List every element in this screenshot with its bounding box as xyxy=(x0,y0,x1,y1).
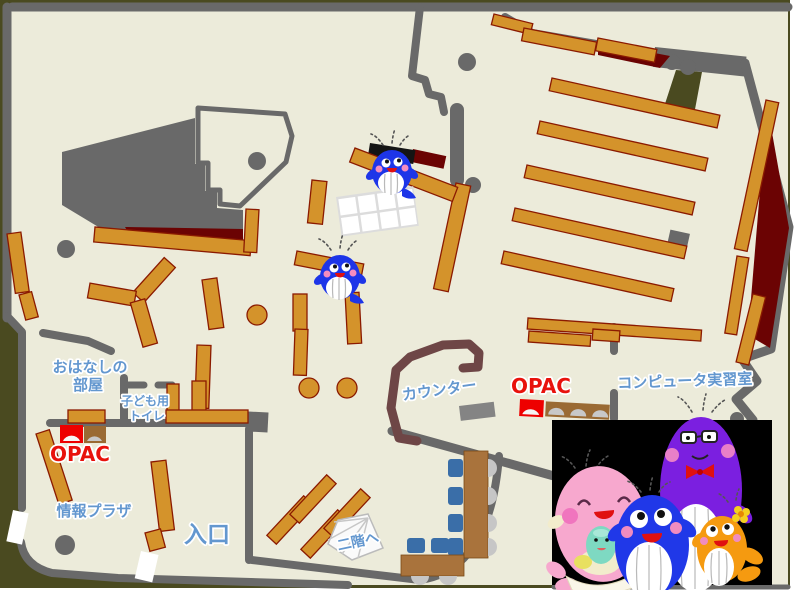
chair xyxy=(407,538,425,553)
chair xyxy=(431,538,449,553)
opac-terminal-left xyxy=(60,425,106,443)
label-entrance: 入口 xyxy=(184,522,230,548)
chair xyxy=(448,487,463,505)
library-floor-map: おはなしの 部屋 子ども用 トイレ OPAC 情報プラザ 入口 二階へ カウンタ… xyxy=(0,0,800,590)
chair xyxy=(448,459,463,477)
label-kids-toilet-line1: 子ども用 xyxy=(121,394,169,408)
round-table xyxy=(299,378,319,398)
flower xyxy=(732,506,750,523)
label-kids-toilet-line2: トイレ xyxy=(129,409,165,423)
round-table xyxy=(337,378,357,398)
label-opac-center: OPAC xyxy=(511,374,571,398)
label-info-plaza: 情報プラザ xyxy=(56,502,131,520)
label-storytelling-room-line2: 部屋 xyxy=(73,376,103,394)
chair xyxy=(448,514,463,532)
mascot-photo xyxy=(543,394,772,590)
label-opac-left: OPAC xyxy=(50,442,110,466)
label-storytelling-room-line1: おはなしの xyxy=(52,358,127,376)
chair xyxy=(448,538,463,556)
round-table xyxy=(247,305,267,325)
